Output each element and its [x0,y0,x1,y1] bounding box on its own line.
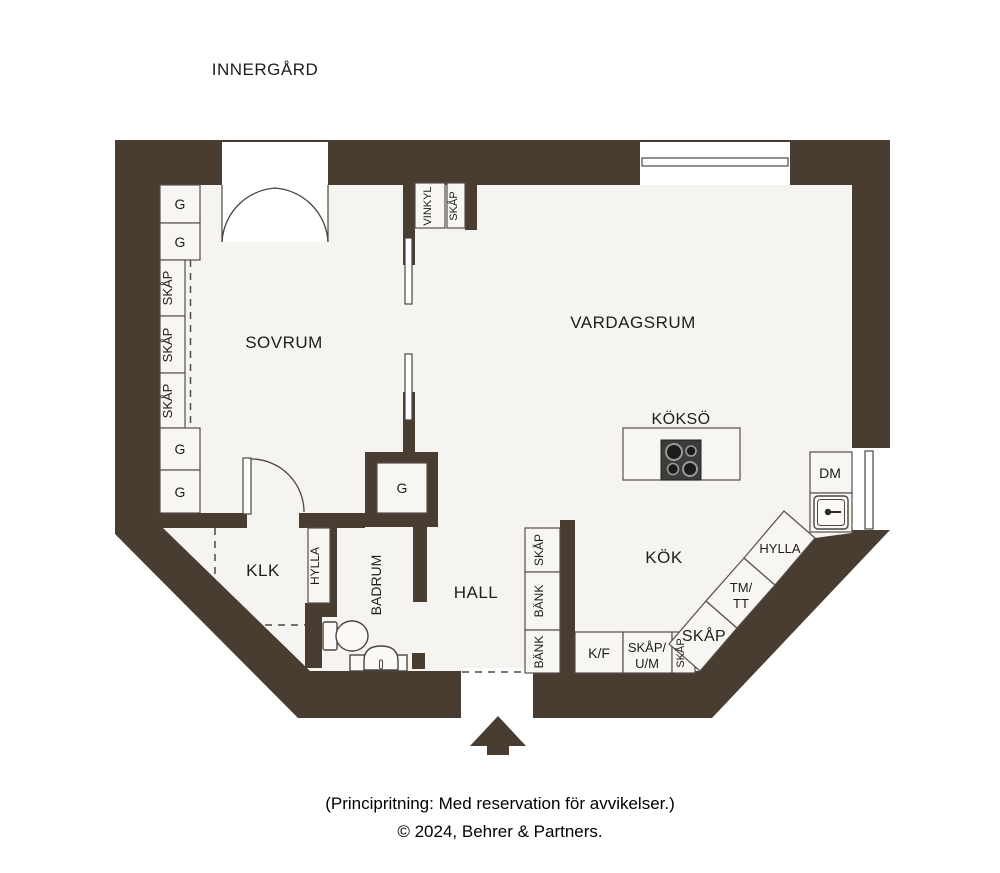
entrance-opening [461,668,533,718]
room-label-vardagsrum: VARDAGSRUM [570,313,696,332]
window-top-glass [642,158,788,166]
room-label-sovrum: SOVRUM [245,333,323,352]
sliding-door-leaf-upper [405,238,412,304]
wall-closet-top [365,452,438,463]
label-skap-um-2: U/M [635,656,659,671]
label-tm: TM/ [730,580,753,595]
wall-closet-right [427,463,438,513]
label-kf: K/F [588,645,610,661]
footer-copyright: © 2024, Behrer & Partners. [397,822,602,841]
wall-closet-left [365,463,377,513]
kitchen-sink [814,496,848,529]
entrance-arrow [470,716,526,755]
footer: (Principritning: Med reservation för avv… [325,794,675,841]
label-g-4: G [175,484,186,500]
label-tt: TT [733,596,749,611]
label-skap-top: SKÅP [447,191,460,220]
floor-plan-page: INNERGÅRD SOVRUM VARDAGSRUM KÖKSÖ KÖK HA… [0,0,1000,873]
room-label-koksoe: KÖKSÖ [652,410,711,428]
wall-under-closet [337,513,438,527]
label-skap-2: SKÅP [160,328,175,363]
burner-medium [683,462,697,476]
floor-plan-drawing: INNERGÅRD SOVRUM VARDAGSRUM KÖKSÖ KÖK HA… [0,0,1000,873]
label-hylla-klk: HYLLA [308,547,322,585]
label-bank-1: BÄNK [532,585,546,618]
room-label-badrum: BADRUM [368,555,384,616]
balcony-door-opening [222,142,328,242]
burner-small-1 [686,446,696,456]
label-skap-diagonal: SKÅP [682,626,726,645]
klk-door-leaf [243,458,251,514]
wall-hall-kitchen [560,520,575,673]
wall-vinkyl-stub [465,142,477,230]
stove [661,440,701,480]
label-g-3: G [175,441,186,457]
room-label-klk: KLK [246,561,280,580]
room-label-kok: KÖK [645,548,683,567]
toilet-tank [323,622,337,650]
burner-small-2 [668,464,679,475]
washbasin-bowl [364,646,398,670]
site-label-innergard: INNERGÅRD [212,60,319,79]
label-dm: DM [819,465,841,481]
label-skap-1: SKÅP [160,271,175,306]
label-skap-3: SKÅP [160,384,175,419]
toilet-bowl [336,621,368,651]
label-vinkyl: VINKYL [422,186,434,225]
window-right-glass [865,451,873,529]
wall-badrum-hall [413,527,427,602]
footer-disclaimer: (Principritning: Med reservation för avv… [325,794,675,813]
wall-badrum-lower-left [305,617,322,668]
sliding-door-leaf-lower [405,354,412,420]
label-skap-um-1: SKÅP/ [628,640,667,655]
room-label-hall: HALL [454,583,499,602]
label-g-1: G [175,196,186,212]
label-bank-2: BÄNK [532,636,546,669]
label-hylla-diagonal: HYLLA [759,541,801,556]
wall-below-hylla [305,603,337,617]
label-skap-hall: SKÅP [531,534,546,566]
wall-badrum-corner-bump [412,653,425,669]
wall-bedroom-bottom-left [150,513,247,528]
burner-large [666,444,682,460]
label-g-closet: G [397,480,408,496]
wall-klk-badrum [330,528,337,603]
label-g-2: G [175,234,186,250]
